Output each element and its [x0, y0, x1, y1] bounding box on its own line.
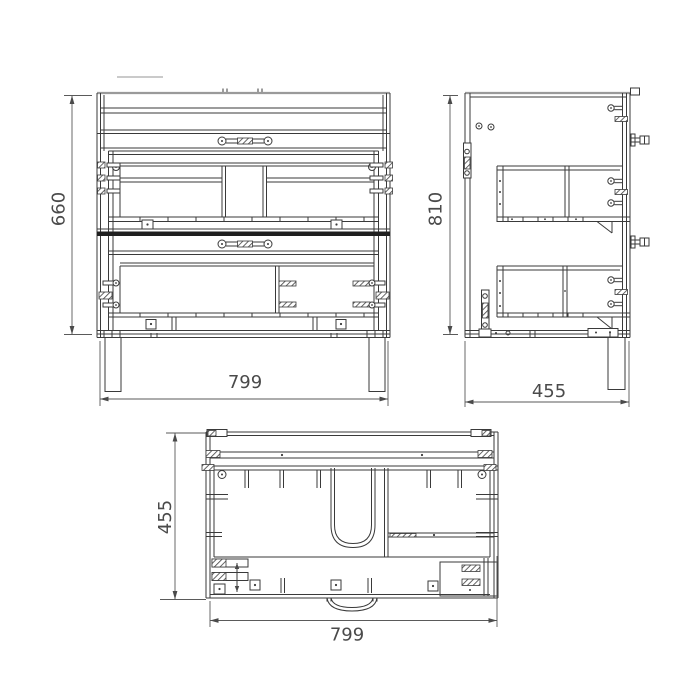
top-width-label: 799	[330, 625, 364, 646]
side-back-bolt-middle	[630, 236, 649, 248]
front-left-leg	[105, 338, 121, 392]
front-height-label: 660	[49, 192, 70, 226]
drawing-svg: 660 799	[0, 0, 700, 700]
side-height-label: 810	[426, 192, 447, 226]
technical-drawing-canvas: 660 799	[0, 0, 700, 700]
front-width-label: 799	[228, 372, 262, 393]
side-depth-label: 455	[532, 381, 566, 402]
front-right-slide-hardware	[370, 162, 393, 194]
side-front-plate-lower	[482, 290, 490, 330]
side-leg	[608, 338, 625, 390]
side-front-plate-upper	[464, 143, 472, 178]
top-depth-label: 455	[155, 500, 176, 534]
front-left-slide-hardware	[98, 162, 121, 194]
front-right-leg	[369, 338, 385, 392]
